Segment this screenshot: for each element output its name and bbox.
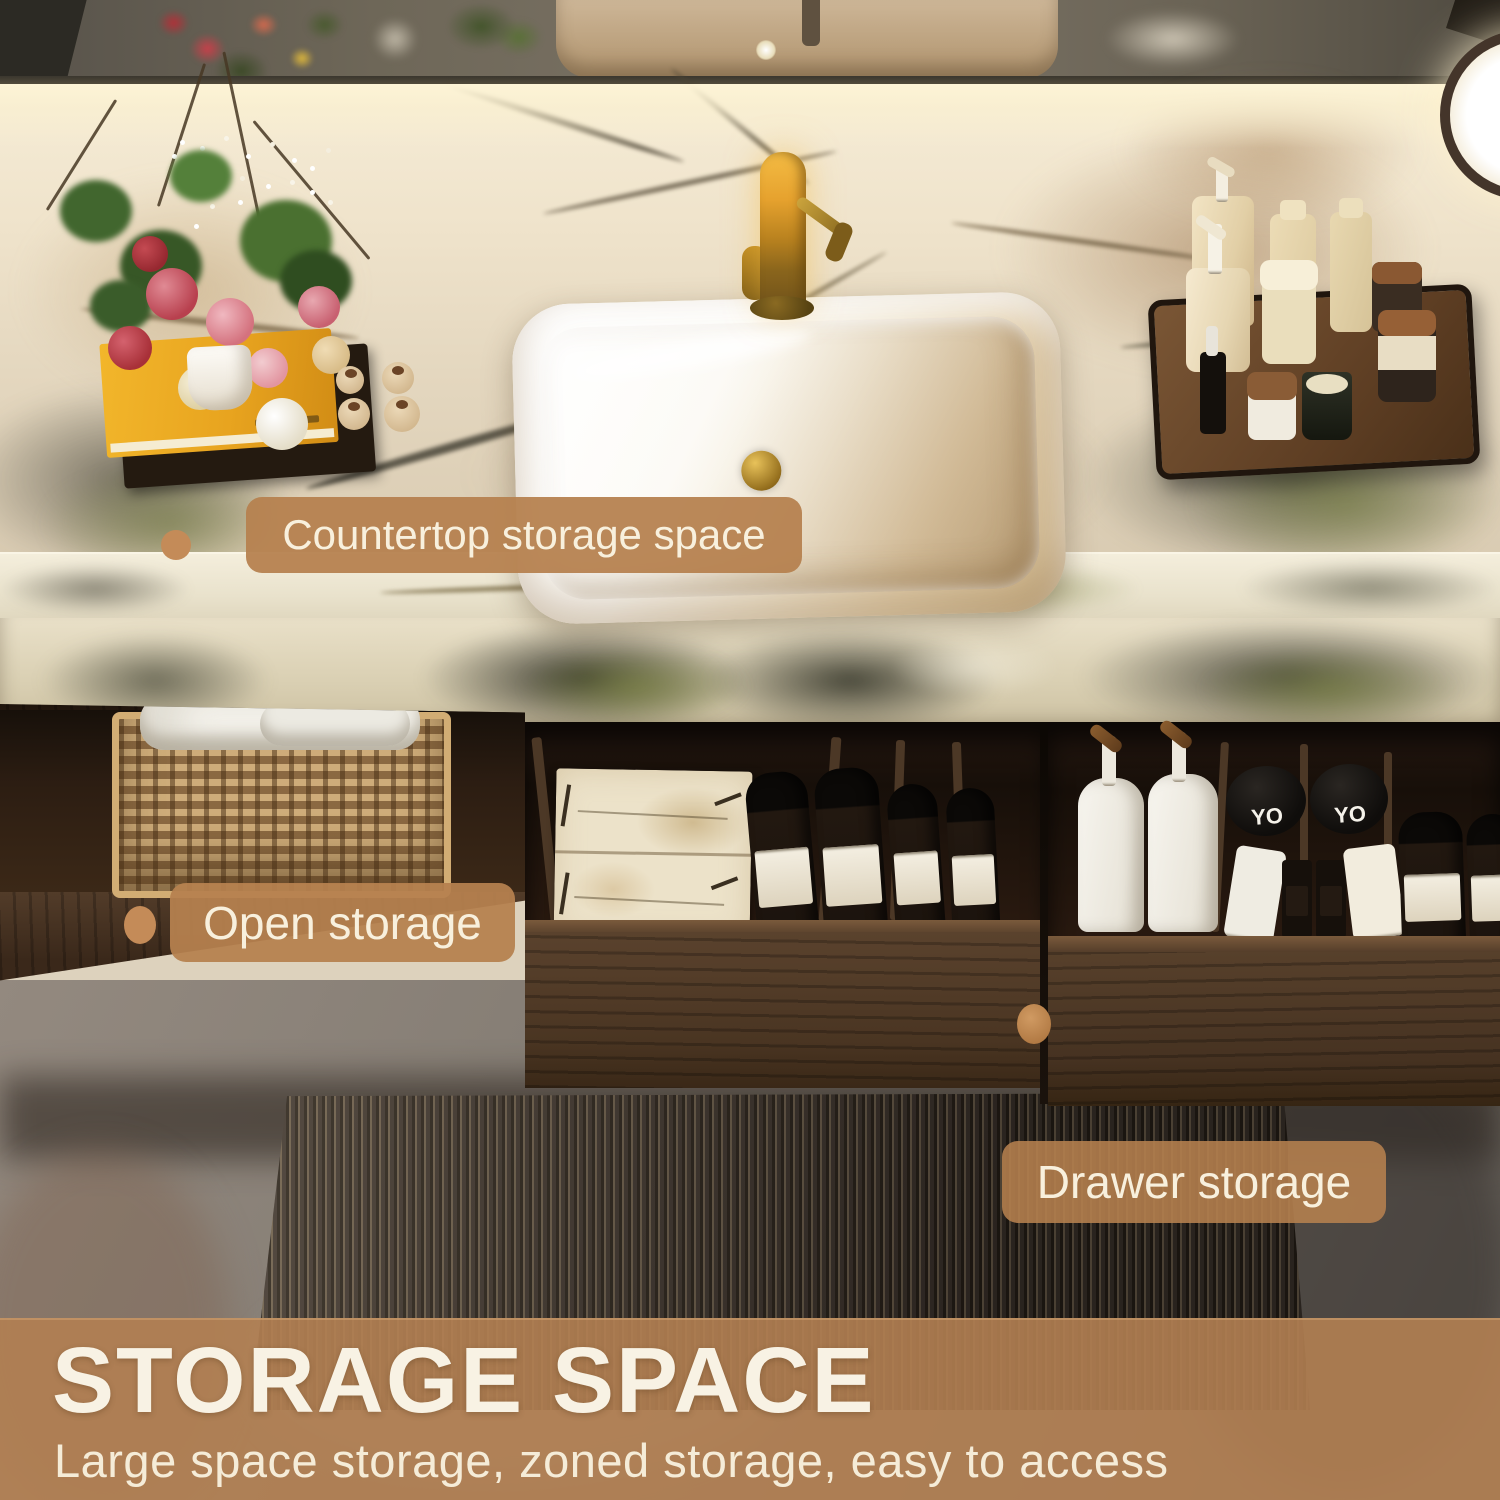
middle-drawer-front xyxy=(525,932,1048,1088)
middle-drawer-interior xyxy=(525,722,1048,932)
reflection-highlight xyxy=(1080,2,1265,76)
vessel-sink xyxy=(511,291,1067,625)
reflection-highlight xyxy=(360,8,430,70)
cream-bottle xyxy=(1330,212,1372,332)
banner-title: STORAGE SPACE xyxy=(52,1334,1500,1427)
open-storage-marker-dot xyxy=(124,906,156,944)
storage-boxes xyxy=(554,768,753,943)
callout-label: Countertop storage space xyxy=(282,511,765,559)
jar-lid xyxy=(1372,262,1422,284)
slipper-logo: YO xyxy=(1333,801,1367,829)
dropper-bottle xyxy=(1200,352,1226,434)
small-bottle xyxy=(1316,860,1346,938)
leaf xyxy=(60,180,132,242)
mirror-reflection-strip xyxy=(0,0,1500,84)
right-drawer-interior: YO YO xyxy=(1048,722,1500,948)
wine-bottle xyxy=(744,770,821,945)
bottle-label xyxy=(1404,873,1462,922)
wine-bottle xyxy=(945,787,1001,937)
bottle-label xyxy=(754,846,813,908)
reflected-faucet-slot xyxy=(802,0,820,46)
bottle-label xyxy=(822,844,882,907)
cream-jar xyxy=(1262,268,1316,364)
rose xyxy=(206,298,254,346)
mushroom-figurine xyxy=(336,366,364,394)
mushroom-spot xyxy=(392,366,404,375)
amber-jar xyxy=(1378,310,1436,402)
rose xyxy=(248,348,288,388)
pump-bottle xyxy=(1078,778,1144,932)
marble-blotch xyxy=(0,564,190,614)
rose xyxy=(256,398,308,450)
banner-subtitle: Large space storage, zoned storage, easy… xyxy=(54,1433,1500,1488)
leaf xyxy=(90,280,152,332)
dropper-top xyxy=(1206,326,1218,356)
countertop-marker-dot xyxy=(161,530,191,560)
slipper-right: YO xyxy=(1308,761,1391,836)
leaf xyxy=(170,150,232,202)
jar-lid xyxy=(1260,260,1318,290)
callout-label: Drawer storage xyxy=(1037,1155,1351,1209)
bottom-banner: STORAGE SPACE Large space storage, zoned… xyxy=(0,1318,1500,1500)
mushroom-spot xyxy=(345,369,357,378)
product-photo: YO YO xyxy=(0,0,1500,1500)
pump-bottle xyxy=(1148,774,1218,932)
rose xyxy=(298,286,340,328)
drawer-box-edge xyxy=(1048,936,1500,952)
rose xyxy=(108,326,152,370)
bottle-label xyxy=(1471,874,1500,922)
right-drawer-front xyxy=(1048,952,1500,1106)
box-mark xyxy=(711,876,739,890)
bottle-label xyxy=(894,851,941,906)
small-bottle xyxy=(1282,860,1312,938)
box-divider xyxy=(555,850,751,856)
box-mark xyxy=(714,792,742,806)
box-mark xyxy=(559,872,570,914)
box-mark xyxy=(561,784,572,826)
mushroom-spot xyxy=(396,400,408,409)
wine-bottle xyxy=(1466,813,1500,951)
flower-vase xyxy=(186,344,253,411)
rose xyxy=(146,268,198,320)
reflected-sink xyxy=(556,0,1058,78)
mushroom-figurine xyxy=(382,362,414,394)
reflected-greenery xyxy=(425,0,550,66)
callout-label: Open storage xyxy=(203,896,482,950)
mushroom-figurine xyxy=(338,398,370,430)
slipper-left: YO xyxy=(1224,763,1309,838)
gold-faucet xyxy=(760,152,806,310)
mushroom-figurine xyxy=(384,396,420,432)
mushroom-spot xyxy=(348,402,360,411)
white-jar xyxy=(1248,378,1296,440)
slipper-logo: YO xyxy=(1250,803,1284,831)
faucet-base xyxy=(750,296,814,320)
middle-drawer-unit xyxy=(525,722,1048,1088)
wine-bottle xyxy=(813,766,889,944)
callout-open-storage: Open storage xyxy=(170,883,515,962)
marble-blotch xyxy=(1240,560,1500,616)
jar-lid xyxy=(1378,310,1436,336)
bottle-cap xyxy=(1280,200,1306,220)
cosmetic-tube xyxy=(1343,843,1406,941)
marble-highlight xyxy=(890,636,1060,698)
wine-bottle xyxy=(1398,811,1467,951)
cosmetic-tube xyxy=(1223,845,1287,944)
callout-drawer-storage: Drawer storage xyxy=(1002,1141,1386,1223)
rose xyxy=(132,236,168,272)
bottle-label xyxy=(952,853,997,905)
reflected-light-dot xyxy=(756,40,776,60)
jar-label xyxy=(1378,336,1436,370)
black-mug xyxy=(1302,372,1352,440)
callout-countertop-storage: Countertop storage space xyxy=(246,497,802,573)
marble-moss-blotch xyxy=(520,646,750,728)
right-drawer-unit: YO YO xyxy=(1048,722,1500,1106)
babys-breath xyxy=(180,140,185,145)
marble-moss-blotch xyxy=(1200,646,1460,732)
jar-lid xyxy=(1247,372,1297,400)
box-mark xyxy=(574,896,724,906)
mug-interior xyxy=(1306,374,1348,394)
bottle-cap xyxy=(1339,198,1363,218)
wine-bottle xyxy=(886,782,946,937)
box-mark xyxy=(578,810,728,820)
drawer-knob xyxy=(1017,1004,1051,1044)
